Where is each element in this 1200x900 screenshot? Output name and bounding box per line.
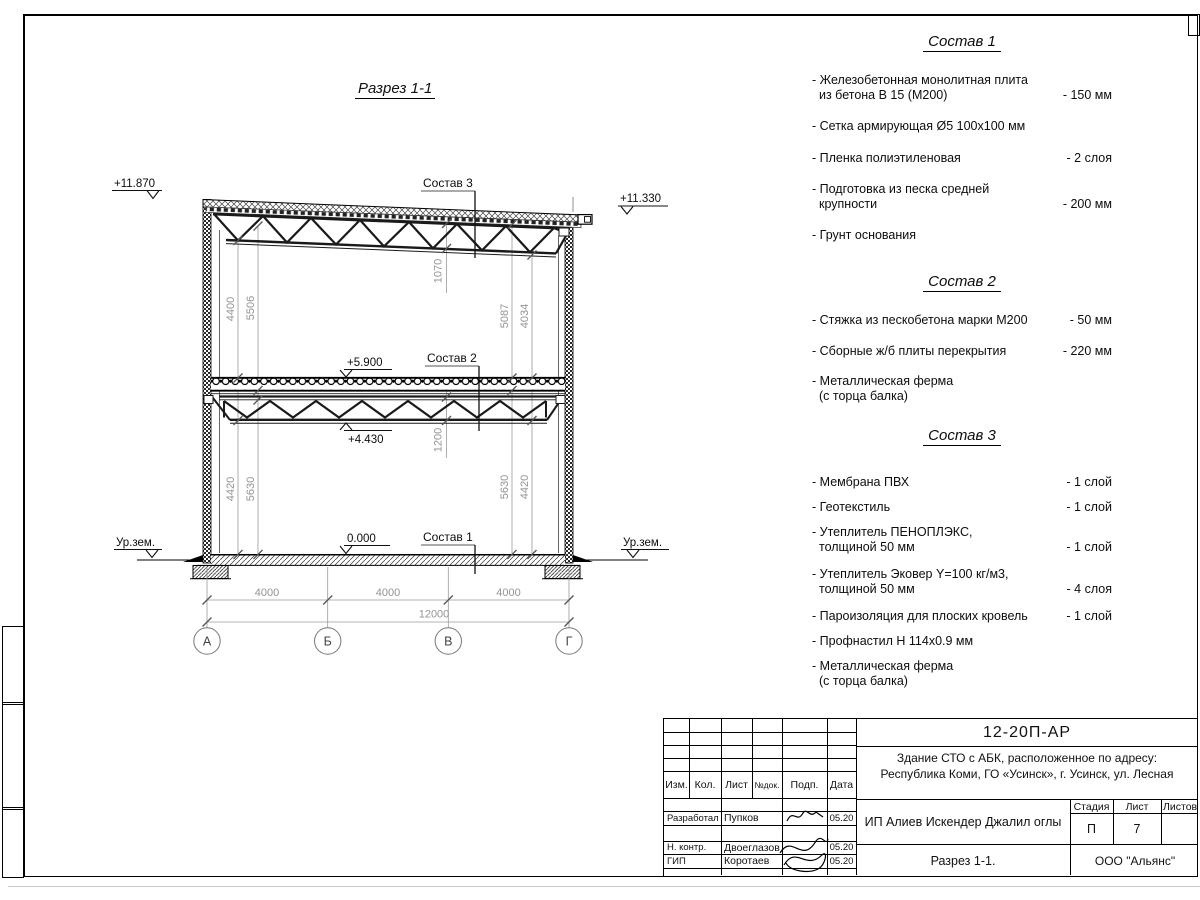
elevation-floor1: 0.000 xyxy=(340,533,390,554)
col-kol: Кол. xyxy=(689,771,721,798)
item-value: - 4 слоя xyxy=(1067,582,1112,597)
svg-text:Состав 2: Состав 2 xyxy=(427,351,477,365)
binding-margin-cell xyxy=(2,702,24,810)
dim-span-total: 12000 xyxy=(419,609,450,621)
project-name: Здание СТО с АБК, расположенное по адрес… xyxy=(856,750,1198,782)
item-value: - 150 мм xyxy=(1063,88,1112,103)
item-value: - 50 мм xyxy=(1070,313,1112,328)
item-text: - Металлическая ферма xyxy=(812,374,953,389)
col-izm: Изм. xyxy=(664,771,689,798)
item-text: толщиной 50 мм xyxy=(812,582,1008,597)
dim-left-bot-outer: 5630 xyxy=(245,477,257,501)
composition-title: Состав 3 xyxy=(812,428,1112,443)
composition-list-2: Состав 2 - Стяжка из пескобетона марки М… xyxy=(812,274,1112,404)
dim-span-vg: 4000 xyxy=(496,587,520,599)
titleblock-line xyxy=(664,798,856,799)
item-value: - 200 мм xyxy=(1063,197,1112,212)
foundation xyxy=(190,566,583,579)
role-name: Пупков xyxy=(721,811,785,825)
item-text: - Пленка полиэтиленовая xyxy=(812,151,961,166)
ground-level-left: Ур.зем. xyxy=(114,537,162,558)
ground-level-right: Ур.зем. xyxy=(621,537,669,558)
dim-floor-truss-depth: 1200 xyxy=(433,428,445,452)
frame-corner-cell xyxy=(1188,14,1200,36)
titleblock-line xyxy=(856,844,1198,845)
project-line: Здание СТО с АБК, расположенное по адрес… xyxy=(856,750,1198,766)
doc-number: 12-20П-АР xyxy=(856,721,1198,745)
list-item: - Геотекстиль - 1 слой xyxy=(812,500,1112,515)
role-label: Разработал xyxy=(664,811,724,825)
svg-text:+5.900: +5.900 xyxy=(347,357,383,369)
svg-text:Ур.зем.: Ур.зем. xyxy=(623,537,662,549)
col-ndok: №док. xyxy=(752,771,782,798)
sheet-shadow xyxy=(8,886,1200,887)
elevation-roof-left: +11.870 xyxy=(112,178,162,199)
titleblock-line xyxy=(664,825,856,826)
elevation-roof-right: +11.330 xyxy=(618,193,668,214)
company-name: ООО "Альянс" xyxy=(1072,846,1198,875)
list-item: - Сборные ж/б плиты перекрытия - 220 мм xyxy=(812,344,1112,359)
item-text: крупности xyxy=(812,197,989,212)
list-item: - Пленка полиэтиленовая - 2 слоя xyxy=(812,151,1112,166)
list-item: - Мембрана ПВХ - 1 слой xyxy=(812,475,1112,490)
elevation-floor2: +5.900 xyxy=(340,357,392,377)
item-text: - Утеплитель ПЕНОПЛЭКС, xyxy=(812,525,972,540)
axis-v: В xyxy=(444,635,452,649)
item-text: - Железобетонная монолитная плита xyxy=(812,73,1028,88)
role-label: Н. контр. xyxy=(664,841,724,854)
sheet-value: 7 xyxy=(1113,813,1161,844)
item-value: - 1 слой xyxy=(1066,475,1112,490)
axis-bubbles: А Б В Г xyxy=(194,628,582,654)
title-block: Изм. Кол. Лист №док. Подп. Дата Разработ… xyxy=(663,718,1198,877)
svg-text:+4.430: +4.430 xyxy=(348,434,384,446)
list-item: - Подготовка из песка средней крупности … xyxy=(812,182,1112,212)
section-drawing: 4400 5506 5087 4034 4420 5630 5630 4420 … xyxy=(0,0,760,700)
item-text: - Сборные ж/б плиты перекрытия xyxy=(812,344,1006,359)
item-text: - Стяжка из пескобетона марки М200 xyxy=(812,313,1028,328)
item-value: - 1 слой xyxy=(1066,500,1112,515)
bottom-dimensions: 4000 4000 4000 12000 xyxy=(203,567,574,628)
role-label: ГИП xyxy=(664,854,724,868)
item-text: - Металлическая ферма xyxy=(812,659,953,674)
list-item: - Сетка армирующая Ø5 100х100 мм xyxy=(812,119,1112,134)
dim-left-top-outer: 5506 xyxy=(245,296,257,320)
composition-title: Состав 1 xyxy=(812,34,1112,49)
sheets-label: Листов xyxy=(1161,800,1200,813)
dim-roof-truss-depth: 1070 xyxy=(433,259,445,283)
col-list: Лист xyxy=(721,771,752,798)
binding-margin-cell xyxy=(2,807,24,878)
item-text: (с торца балка) xyxy=(812,389,953,404)
role-date: 05.20 xyxy=(827,811,856,825)
item-text: - Сетка армирующая Ø5 100х100 мм xyxy=(812,119,1025,134)
axis-g: Г xyxy=(566,635,573,649)
item-text: - Мембрана ПВХ xyxy=(812,475,909,490)
sheet-label: Лист xyxy=(1113,800,1161,813)
list-item: - Железобетонная монолитная плита из бет… xyxy=(812,73,1112,103)
item-value: - 1 слой xyxy=(1066,540,1112,555)
svg-text:+11.330: +11.330 xyxy=(620,193,661,205)
list-item: - Стяжка из пескобетона марки М200 - 50 … xyxy=(812,313,1112,328)
titleblock-line xyxy=(856,746,1198,747)
svg-text:Ур.зем.: Ур.зем. xyxy=(116,537,155,549)
titleblock-line xyxy=(664,745,856,746)
axis-b: Б xyxy=(324,635,332,649)
titleblock-line xyxy=(664,732,856,733)
item-value: - 2 слоя xyxy=(1067,151,1112,166)
item-value: - 1 слой xyxy=(1066,609,1112,624)
list-item: - Металлическая ферма (с торца балка) xyxy=(812,659,1112,689)
stage-label: Стадия xyxy=(1070,800,1113,813)
item-text: - Геотекстиль xyxy=(812,500,890,515)
composition-title: Состав 2 xyxy=(812,274,1112,289)
item-text: из бетона В 15 (М200) xyxy=(812,88,1028,103)
list-item: - Профнастил Н 114х0.9 мм xyxy=(812,634,1112,649)
elevation-truss-bottom: +4.430 xyxy=(340,423,392,446)
item-value: - 220 мм xyxy=(1063,344,1112,359)
dim-span-ab: 4000 xyxy=(255,587,279,599)
list-item: - Утеплитель ПЕНОПЛЭКС, толщиной 50 мм -… xyxy=(812,525,1112,555)
svg-text:0.000: 0.000 xyxy=(347,533,376,545)
item-text: - Подготовка из песка средней xyxy=(812,182,989,197)
dim-span-bv: 4000 xyxy=(376,587,400,599)
item-text: - Утеплитель Эковер Y=100 кг/м3, xyxy=(812,567,1008,582)
composition-list-3: Состав 3 - Мембрана ПВХ - 1 слой - Геоте… xyxy=(812,428,1112,689)
item-text: - Грунт основания xyxy=(812,228,916,243)
svg-text:+11.870: +11.870 xyxy=(114,178,155,190)
svg-text:Состав 3: Состав 3 xyxy=(423,176,473,190)
signature xyxy=(772,831,832,875)
list-item: - Утеплитель Эковер Y=100 кг/м3, толщино… xyxy=(812,567,1112,597)
svg-text:Состав 1: Состав 1 xyxy=(423,530,473,544)
drawing-sheet: Разрез 1-1 xyxy=(0,0,1200,900)
sheet-title: Разрез 1-1. xyxy=(858,846,1068,875)
item-text: - Профнастил Н 114х0.9 мм xyxy=(812,634,973,649)
client-name: ИП Алиев Искендер Джалил оглы xyxy=(858,801,1068,842)
project-line: Республика Коми, ГО «Усинск», г. Усинск,… xyxy=(856,766,1198,782)
stage-value: П xyxy=(1070,813,1113,844)
dim-right-top-outer: 4034 xyxy=(519,304,531,328)
ground-slab xyxy=(197,555,580,566)
dim-left-top-inner: 4400 xyxy=(225,297,237,321)
item-text: - Пароизоляция для плоских кровель xyxy=(812,609,1028,624)
dim-right-bot-outer: 4420 xyxy=(519,475,531,499)
list-item: - Металлическая ферма (с торца балка) xyxy=(812,374,1112,404)
signature xyxy=(784,805,826,827)
dim-right-top-inner: 5087 xyxy=(499,304,511,328)
list-item: - Пароизоляция для плоских кровель - 1 с… xyxy=(812,609,1112,624)
col-podp: Подп. xyxy=(782,771,827,798)
titleblock-line xyxy=(664,758,856,759)
composition-list-1: Состав 1 - Железобетонная монолитная пли… xyxy=(812,34,1112,243)
dim-left-bot-inner: 4420 xyxy=(225,477,237,501)
item-text: толщиной 50 мм xyxy=(812,540,972,555)
col-data: Дата xyxy=(827,771,856,798)
item-text: (с торца балка) xyxy=(812,674,953,689)
axis-a: А xyxy=(203,635,212,649)
dim-right-bot-inner: 5630 xyxy=(499,475,511,499)
list-item: - Грунт основания xyxy=(812,228,1112,243)
